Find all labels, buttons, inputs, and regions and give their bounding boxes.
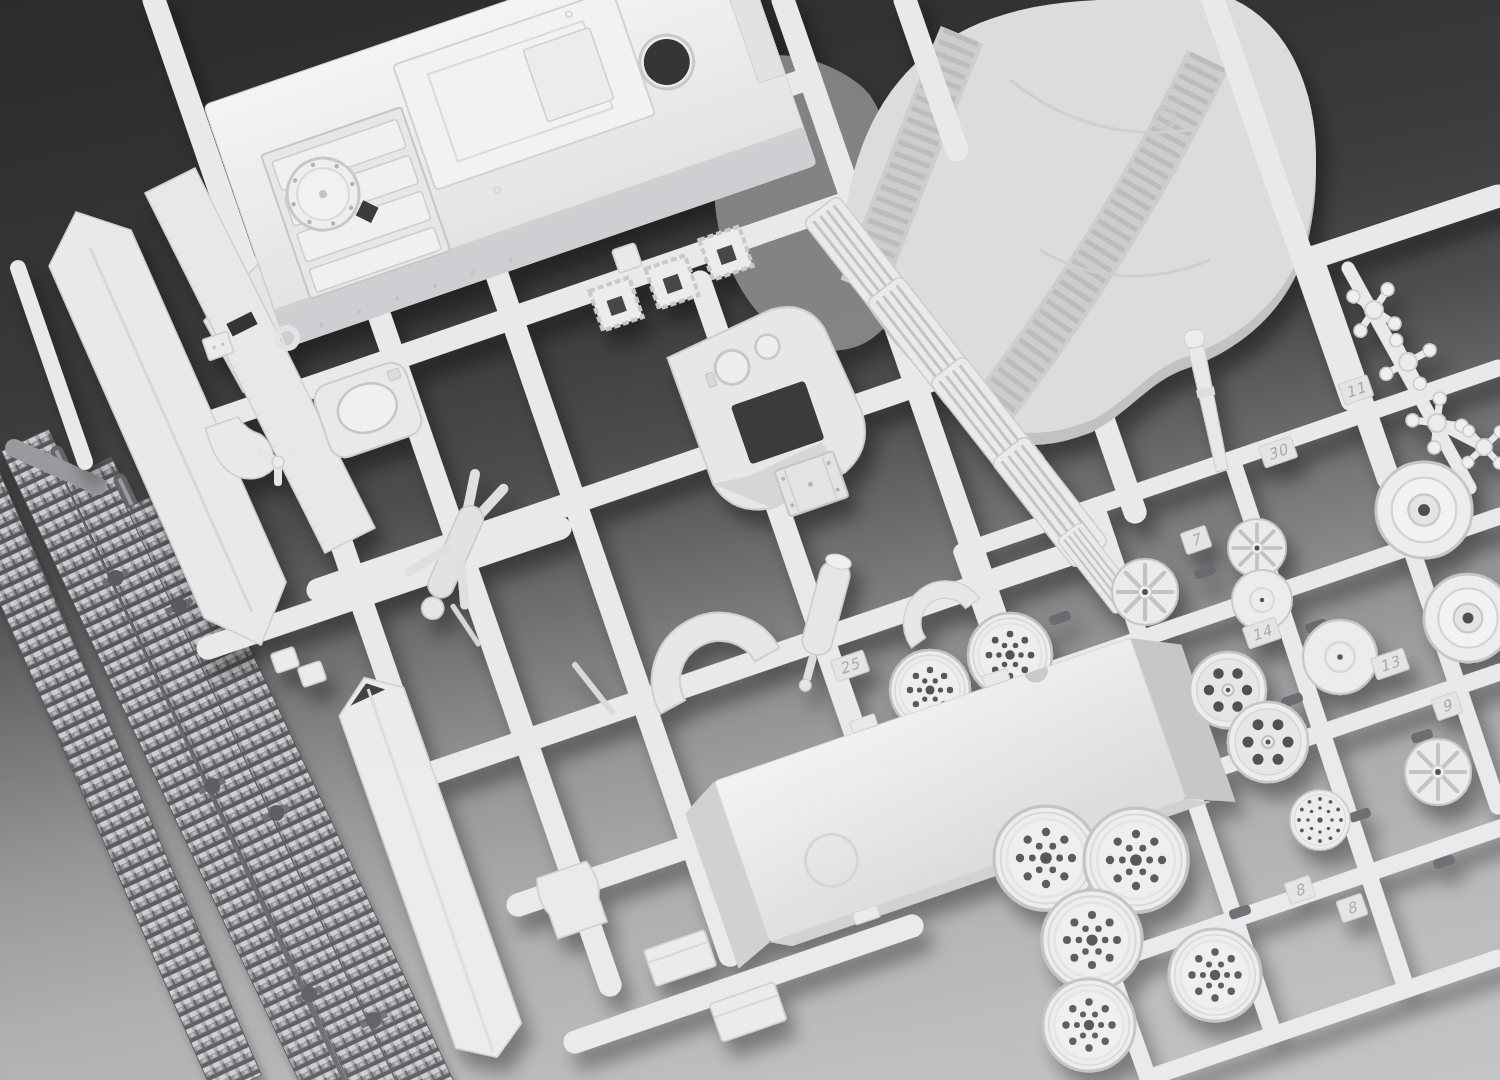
lighting-sheen-overlay: [0, 0, 1500, 1080]
photo-canvas: 30 11 7 14 13 9 8 8: [0, 0, 1500, 1080]
model-kit-photo: 30 11 7 14 13 9 8 8: [0, 0, 1500, 1080]
